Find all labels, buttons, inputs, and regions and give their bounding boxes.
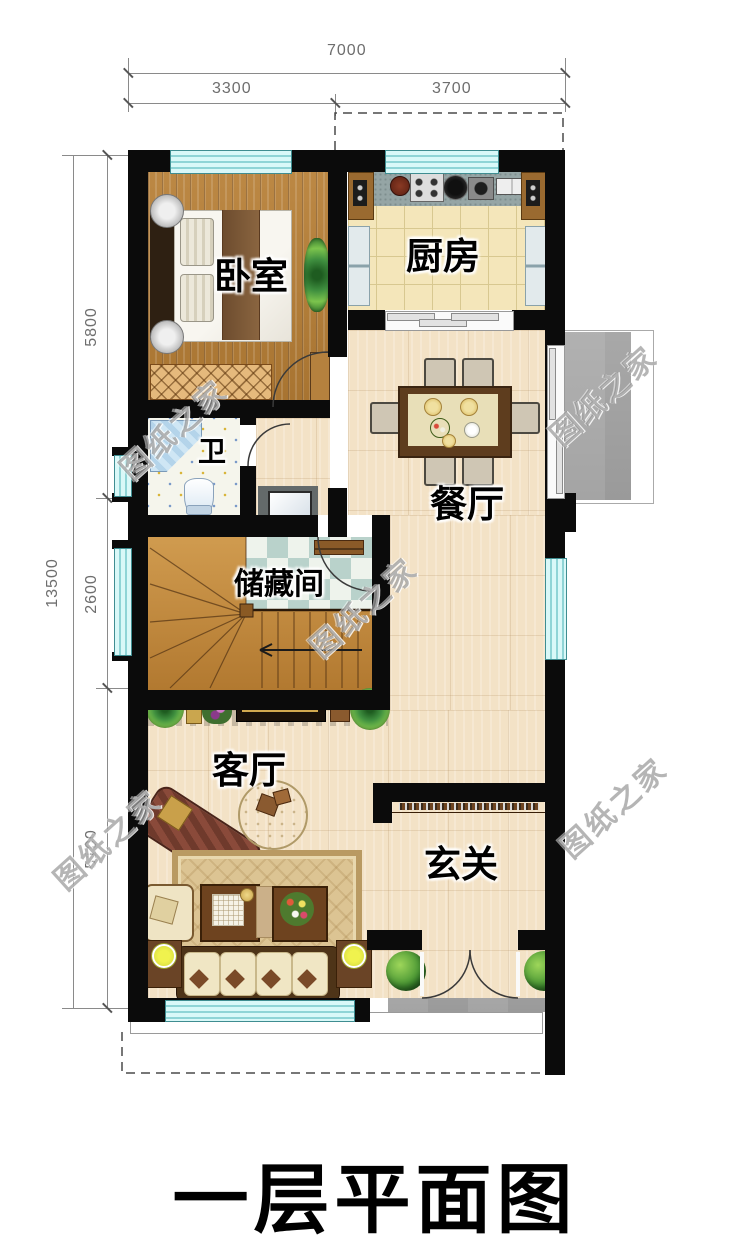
stair-window (114, 548, 132, 656)
dim-ext-line (62, 1008, 128, 1009)
wall-kitchen-bottom-right (512, 310, 565, 330)
room-label-bedroom: 卧室 (214, 258, 288, 295)
dim-top-left: 3300 (212, 80, 252, 98)
wok-pan (443, 175, 468, 200)
storage-shelf (314, 540, 364, 555)
wall-bath-right-top (240, 418, 256, 425)
plate (460, 398, 478, 416)
oven-left (353, 180, 367, 206)
stove (410, 173, 444, 202)
dim-side-total: 13500 (44, 558, 62, 608)
nightstand-lamp (150, 194, 184, 228)
plate (424, 398, 442, 416)
living-window (165, 1000, 355, 1022)
wall-storage-top-left (128, 515, 318, 537)
dim-line (128, 103, 565, 104)
room-label-bathroom: 卫 (198, 438, 226, 466)
bed-pillow (180, 218, 214, 266)
oven-right (526, 180, 540, 206)
dining-window (545, 558, 567, 660)
kitchen-sink (468, 177, 494, 200)
bed-pillow (180, 274, 214, 322)
dim-ext-line (62, 155, 128, 156)
room-label-kitchen: 厨房 (406, 238, 480, 275)
dim-line (107, 155, 108, 1008)
dim-top-total: 7000 (327, 42, 367, 60)
tall-cabinet-right (525, 226, 547, 306)
watermark: 图纸之家 (548, 745, 676, 866)
plate (464, 422, 480, 438)
floorplan-canvas: 7000 3300 3700 13500 5800 2600 5100 (0, 0, 750, 1250)
wall-kitchen-bottom-left (348, 310, 385, 330)
bedroom-window (170, 150, 292, 174)
flower-arrangement (280, 892, 314, 926)
cooking-pot (390, 176, 410, 196)
fridge-left (348, 226, 370, 306)
table-lamp (152, 944, 176, 968)
table-lamp (342, 944, 366, 968)
room-label-living: 客厅 (212, 752, 286, 789)
wall-foyer-stub (373, 783, 392, 823)
wall-entry-bottom-right (518, 930, 565, 950)
dim-side-top: 5800 (83, 307, 101, 347)
toilet-tank (186, 505, 212, 515)
entry-shrub (386, 951, 426, 991)
wall-entry-bottom-left (367, 930, 422, 950)
wall-bedroom-kitchen (328, 150, 347, 357)
wall-bath-right (240, 466, 256, 515)
dim-line (128, 73, 565, 74)
bedroom-plant (304, 238, 330, 312)
gold-plate (240, 888, 254, 902)
microwave (496, 178, 522, 195)
wall-storage-bottom (128, 690, 390, 710)
kitchen-sliding-panel (451, 313, 499, 321)
wall-foyer-north (373, 783, 565, 802)
room-label-foyer: 玄关 (424, 846, 498, 883)
room-label-storage: 储藏间 (234, 570, 324, 600)
plate (442, 434, 456, 448)
dim-top-right: 3700 (432, 80, 472, 98)
dim-side-middle: 2600 (83, 574, 101, 614)
nightstand-lamp (150, 320, 184, 354)
room-label-dining: 餐厅 (430, 486, 504, 523)
lace-doily (212, 894, 244, 926)
wall-bedroom-kitchen-lower (328, 488, 347, 537)
kitchen-window (385, 150, 499, 174)
drawing-title: 一层平面图 (0, 1138, 750, 1248)
dim-ext-line (96, 688, 128, 689)
